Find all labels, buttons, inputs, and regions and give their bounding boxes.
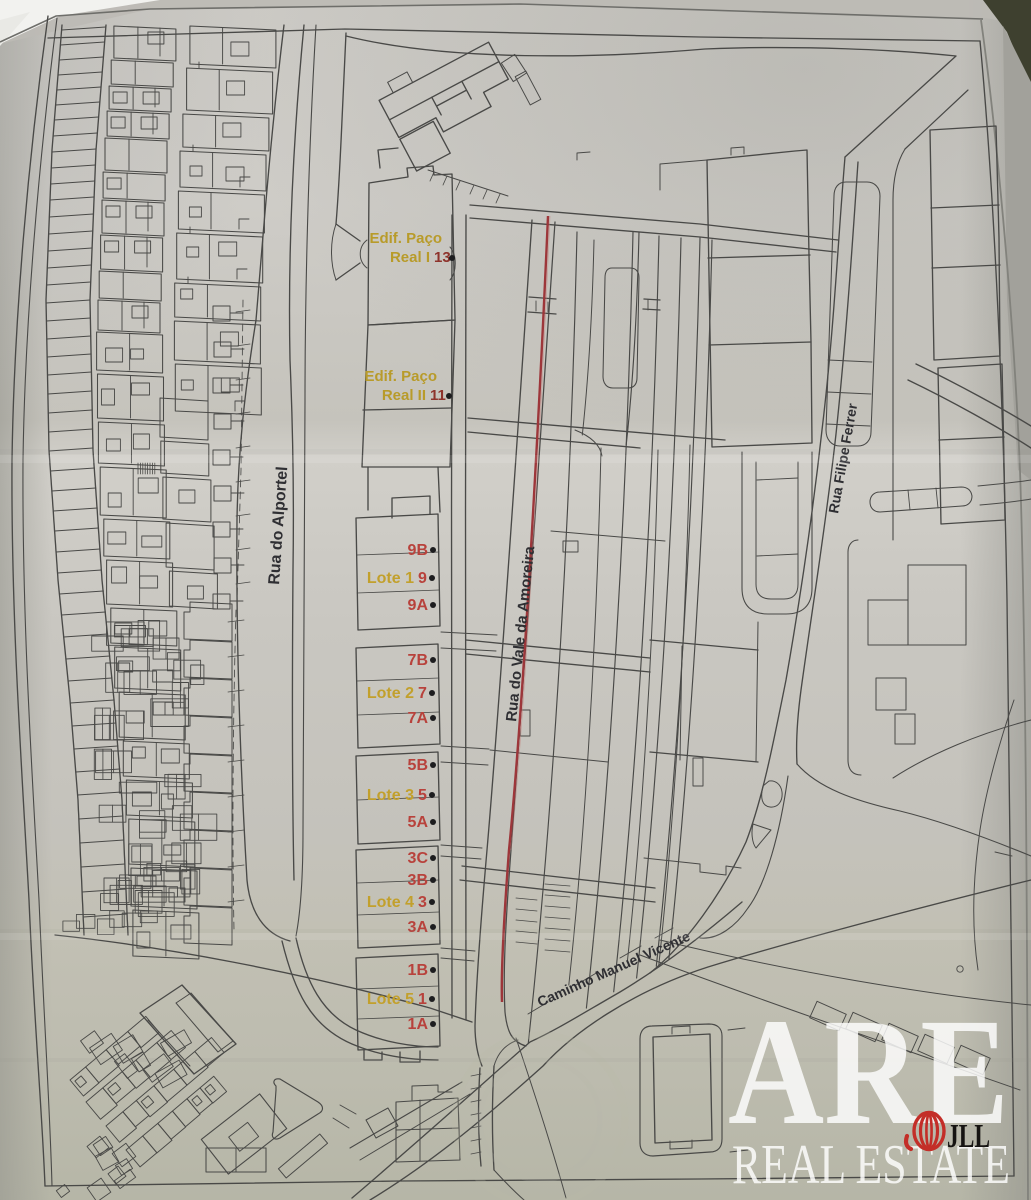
svg-text:Real II: Real II	[382, 387, 426, 404]
svg-text:7B: 7B	[408, 652, 428, 669]
svg-text:Lote 3: Lote 3	[367, 787, 414, 804]
svg-text:7A: 7A	[408, 710, 429, 727]
svg-text:9: 9	[418, 570, 427, 587]
svg-text:3: 3	[418, 894, 427, 911]
svg-text:5: 5	[418, 787, 427, 804]
svg-text:3C: 3C	[408, 850, 429, 867]
svg-text:5A: 5A	[408, 814, 429, 831]
svg-text:Real I: Real I	[390, 249, 430, 266]
svg-text:13: 13	[434, 249, 451, 266]
svg-text:11: 11	[430, 387, 446, 404]
svg-text:1A: 1A	[408, 1016, 429, 1033]
svg-text:3B: 3B	[408, 872, 428, 889]
svg-text:5B: 5B	[408, 757, 428, 774]
svg-text:1B: 1B	[408, 962, 428, 979]
svg-text:Lote 2: Lote 2	[367, 685, 414, 702]
svg-text:1: 1	[418, 991, 427, 1008]
svg-text:Lote 1: Lote 1	[367, 570, 414, 587]
svg-text:JLL: JLL	[947, 1118, 990, 1155]
svg-text:9A: 9A	[408, 597, 429, 614]
svg-text:Lote 5: Lote 5	[367, 991, 414, 1008]
svg-text:Lote 4: Lote 4	[367, 894, 414, 911]
svg-text:Edif. Paço: Edif. Paço	[364, 368, 437, 385]
svg-text:7: 7	[418, 685, 427, 702]
svg-text:9B: 9B	[408, 542, 428, 559]
svg-text:Edif. Paço: Edif. Paço	[369, 230, 442, 247]
